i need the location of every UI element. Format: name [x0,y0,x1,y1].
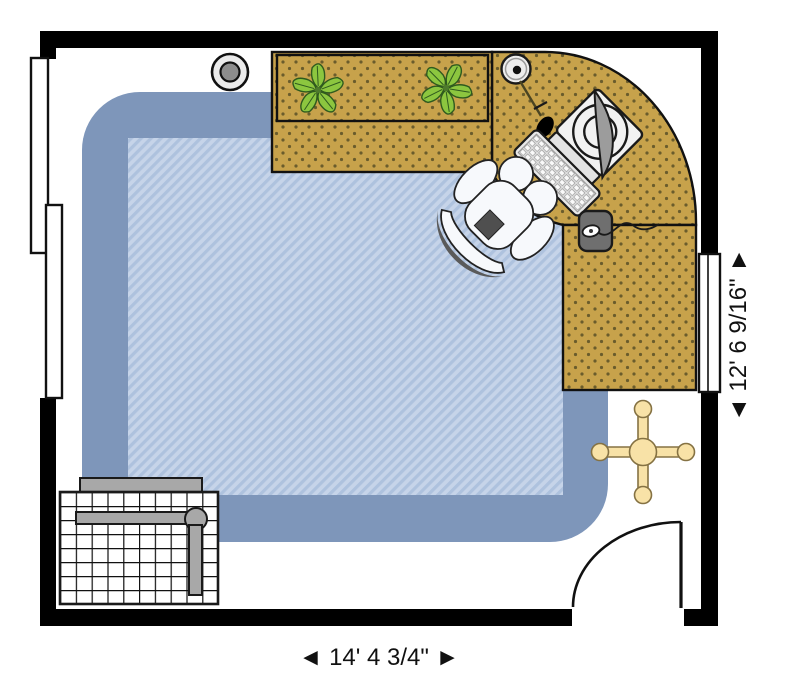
table-ruler-horizontal [76,512,192,524]
dimension-label-height: ◄ 12' 6 9/16" ► [725,248,752,422]
lamp-pivot [513,66,521,74]
wall-left-stub [40,31,56,59]
wall-right-lower [701,392,718,626]
dimension-label-width: ◄ 14' 4 3/4" ► [299,644,460,671]
drafting-table[interactable] [60,478,218,604]
wall-bottom-right [684,609,718,626]
floor-plan: ◄ 14' 4 3/4" ► ◄ 12' 6 9/16" ► [0,0,786,684]
wall-bottom-left [40,609,572,626]
smoke-detector-inner [221,63,240,82]
mouse-wheel [589,229,593,233]
floor-plan-canvas: ◄ 14' 4 3/4" ► ◄ 12' 6 9/16" ► [0,0,786,684]
fan-blade-tip [635,487,652,504]
fan-blade-tip [635,401,652,418]
fan-blade-tip [592,444,609,461]
wall-top [40,31,718,48]
window-right[interactable] [699,254,720,392]
wall-right-upper [701,31,718,253]
table-ruler-vertical [189,525,202,595]
window-left-lower[interactable] [46,205,62,398]
fan-blade-tip [678,444,695,461]
smoke-detector[interactable] [212,54,248,90]
fan-hub [630,439,657,466]
wall-left-lower [40,398,56,626]
window-right-frame [699,254,720,392]
